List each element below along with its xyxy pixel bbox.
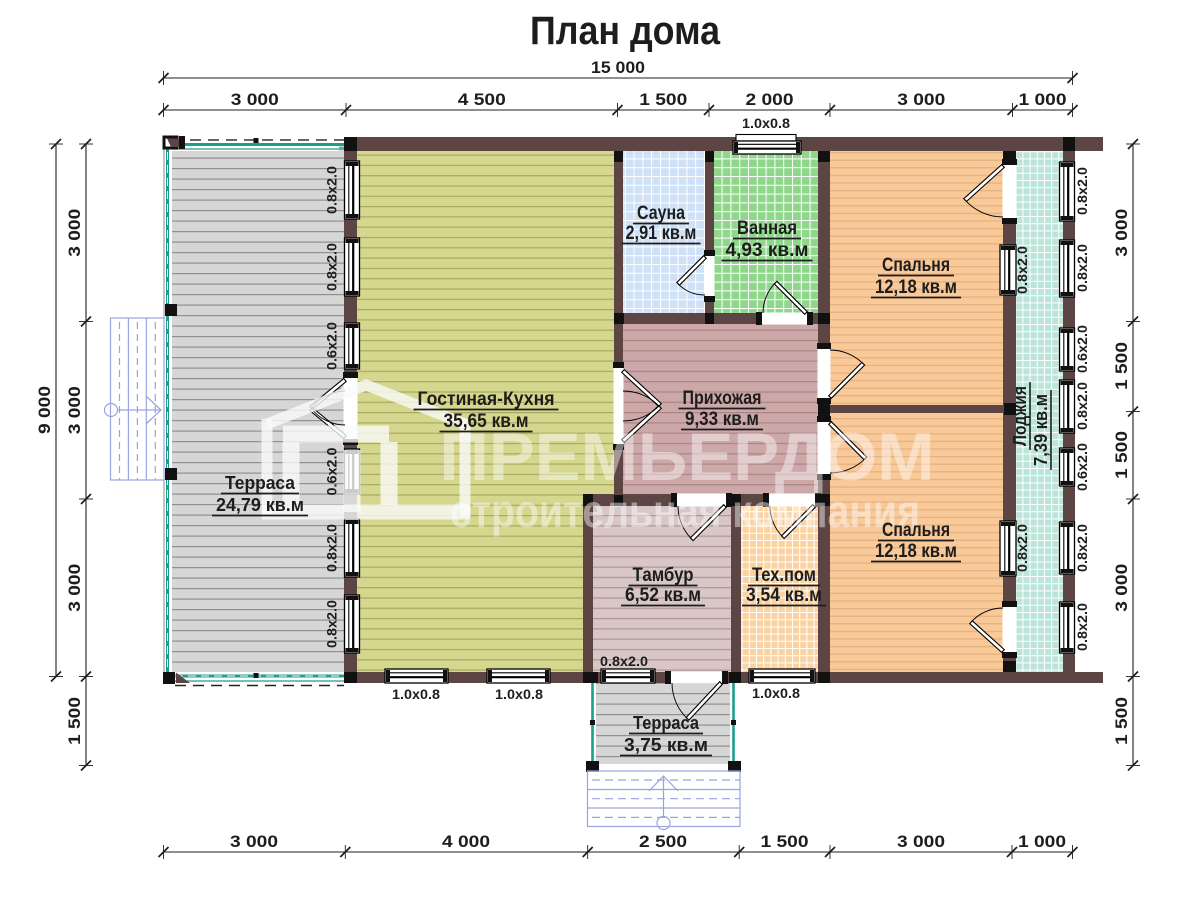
svg-text:1 000: 1 000 <box>1019 90 1067 109</box>
svg-text:0.8х2.0: 0.8х2.0 <box>1015 524 1030 572</box>
svg-text:0.6х2.0: 0.6х2.0 <box>1075 443 1090 491</box>
svg-text:3 000: 3 000 <box>65 386 84 434</box>
svg-text:0.8х2.0: 0.8х2.0 <box>1075 603 1090 651</box>
svg-text:0.8х2.0: 0.8х2.0 <box>1075 524 1090 572</box>
svg-text:1 000: 1 000 <box>1018 832 1066 851</box>
svg-text:0.8х2.0: 0.8х2.0 <box>325 166 340 214</box>
svg-text:строительная компания: строительная компания <box>450 485 920 537</box>
svg-text:3 000: 3 000 <box>897 832 945 851</box>
svg-text:6,52 кв.м: 6,52 кв.м <box>625 585 701 606</box>
svg-text:0.8х2.0: 0.8х2.0 <box>325 600 340 648</box>
svg-text:Тамбур: Тамбур <box>633 565 694 586</box>
svg-text:Спальня: Спальня <box>882 255 950 276</box>
svg-text:Прихожая: Прихожая <box>683 388 762 409</box>
svg-text:15 000: 15 000 <box>591 58 645 77</box>
svg-text:3 000: 3 000 <box>1112 564 1131 612</box>
svg-text:Спальня: Спальня <box>882 520 950 541</box>
svg-text:0.8х2.0: 0.8х2.0 <box>325 524 340 572</box>
svg-text:4 500: 4 500 <box>458 90 506 109</box>
svg-text:1 500: 1 500 <box>65 697 84 745</box>
svg-text:3 000: 3 000 <box>897 90 945 109</box>
svg-text:9,33 кв.м: 9,33 кв.м <box>685 409 759 430</box>
svg-text:1 500: 1 500 <box>761 832 809 851</box>
svg-text:3 000: 3 000 <box>65 564 84 612</box>
svg-text:Терраса: Терраса <box>633 713 700 733</box>
svg-text:Ванная: Ванная <box>737 218 797 239</box>
svg-text:3,54 кв.м: 3,54 кв.м <box>746 585 822 606</box>
svg-text:1 500: 1 500 <box>1112 342 1131 390</box>
svg-text:1.0х0.8: 1.0х0.8 <box>392 687 441 702</box>
svg-text:3 000: 3 000 <box>231 90 279 109</box>
svg-text:9 000: 9 000 <box>35 386 54 434</box>
svg-text:1.0х0.8: 1.0х0.8 <box>752 686 801 701</box>
svg-text:Терраса: Терраса <box>225 473 296 493</box>
svg-text:1 500: 1 500 <box>1112 697 1131 745</box>
svg-text:Тех.пом: Тех.пом <box>752 565 816 586</box>
svg-text:3 000: 3 000 <box>1112 209 1131 257</box>
svg-text:0.8х2.0: 0.8х2.0 <box>1015 246 1030 294</box>
svg-text:35,65 кв.м: 35,65 кв.м <box>444 411 529 432</box>
svg-text:3 000: 3 000 <box>65 209 84 257</box>
svg-text:0.6х2.0: 0.6х2.0 <box>1075 325 1090 373</box>
svg-text:0.8х2.0: 0.8х2.0 <box>600 654 648 669</box>
svg-text:3 000: 3 000 <box>230 832 278 851</box>
svg-text:12,18 кв.м: 12,18 кв.м <box>875 277 957 298</box>
svg-text:3,75 кв.м: 3,75 кв.м <box>624 735 708 755</box>
svg-text:24,79 кв.м: 24,79 кв.м <box>216 495 304 515</box>
svg-text:0.8х2.0: 0.8х2.0 <box>1075 167 1090 215</box>
svg-text:2,91 кв.м: 2,91 кв.м <box>626 223 697 244</box>
svg-text:0.8х2.0: 0.8х2.0 <box>1075 244 1090 292</box>
svg-text:7,39 кв.м: 7,39 кв.м <box>1031 394 1051 466</box>
svg-text:4,93 кв.м: 4,93 кв.м <box>726 240 809 261</box>
svg-text:2 500: 2 500 <box>639 832 687 851</box>
svg-text:0.6х2.0: 0.6х2.0 <box>325 448 340 496</box>
svg-text:1.0х0.8: 1.0х0.8 <box>742 116 791 131</box>
svg-text:План дома: План дома <box>530 9 721 53</box>
svg-text:0.8х2.0: 0.8х2.0 <box>325 243 340 291</box>
svg-text:4 000: 4 000 <box>442 832 490 851</box>
svg-text:0.6х2.0: 0.6х2.0 <box>325 322 340 370</box>
svg-text:1.0х0.8: 1.0х0.8 <box>495 687 544 702</box>
svg-text:12,18 кв.м: 12,18 кв.м <box>875 541 957 562</box>
svg-text:Лоджия: Лоджия <box>1010 386 1030 446</box>
svg-text:1 500: 1 500 <box>1112 431 1131 479</box>
svg-text:1 500: 1 500 <box>639 90 687 109</box>
svg-text:2 000: 2 000 <box>746 90 794 109</box>
svg-text:Гостиная-Кухня: Гостиная-Кухня <box>418 389 555 410</box>
svg-text:Сауна: Сауна <box>637 203 685 224</box>
svg-text:0.8х2.0: 0.8х2.0 <box>1075 382 1090 430</box>
